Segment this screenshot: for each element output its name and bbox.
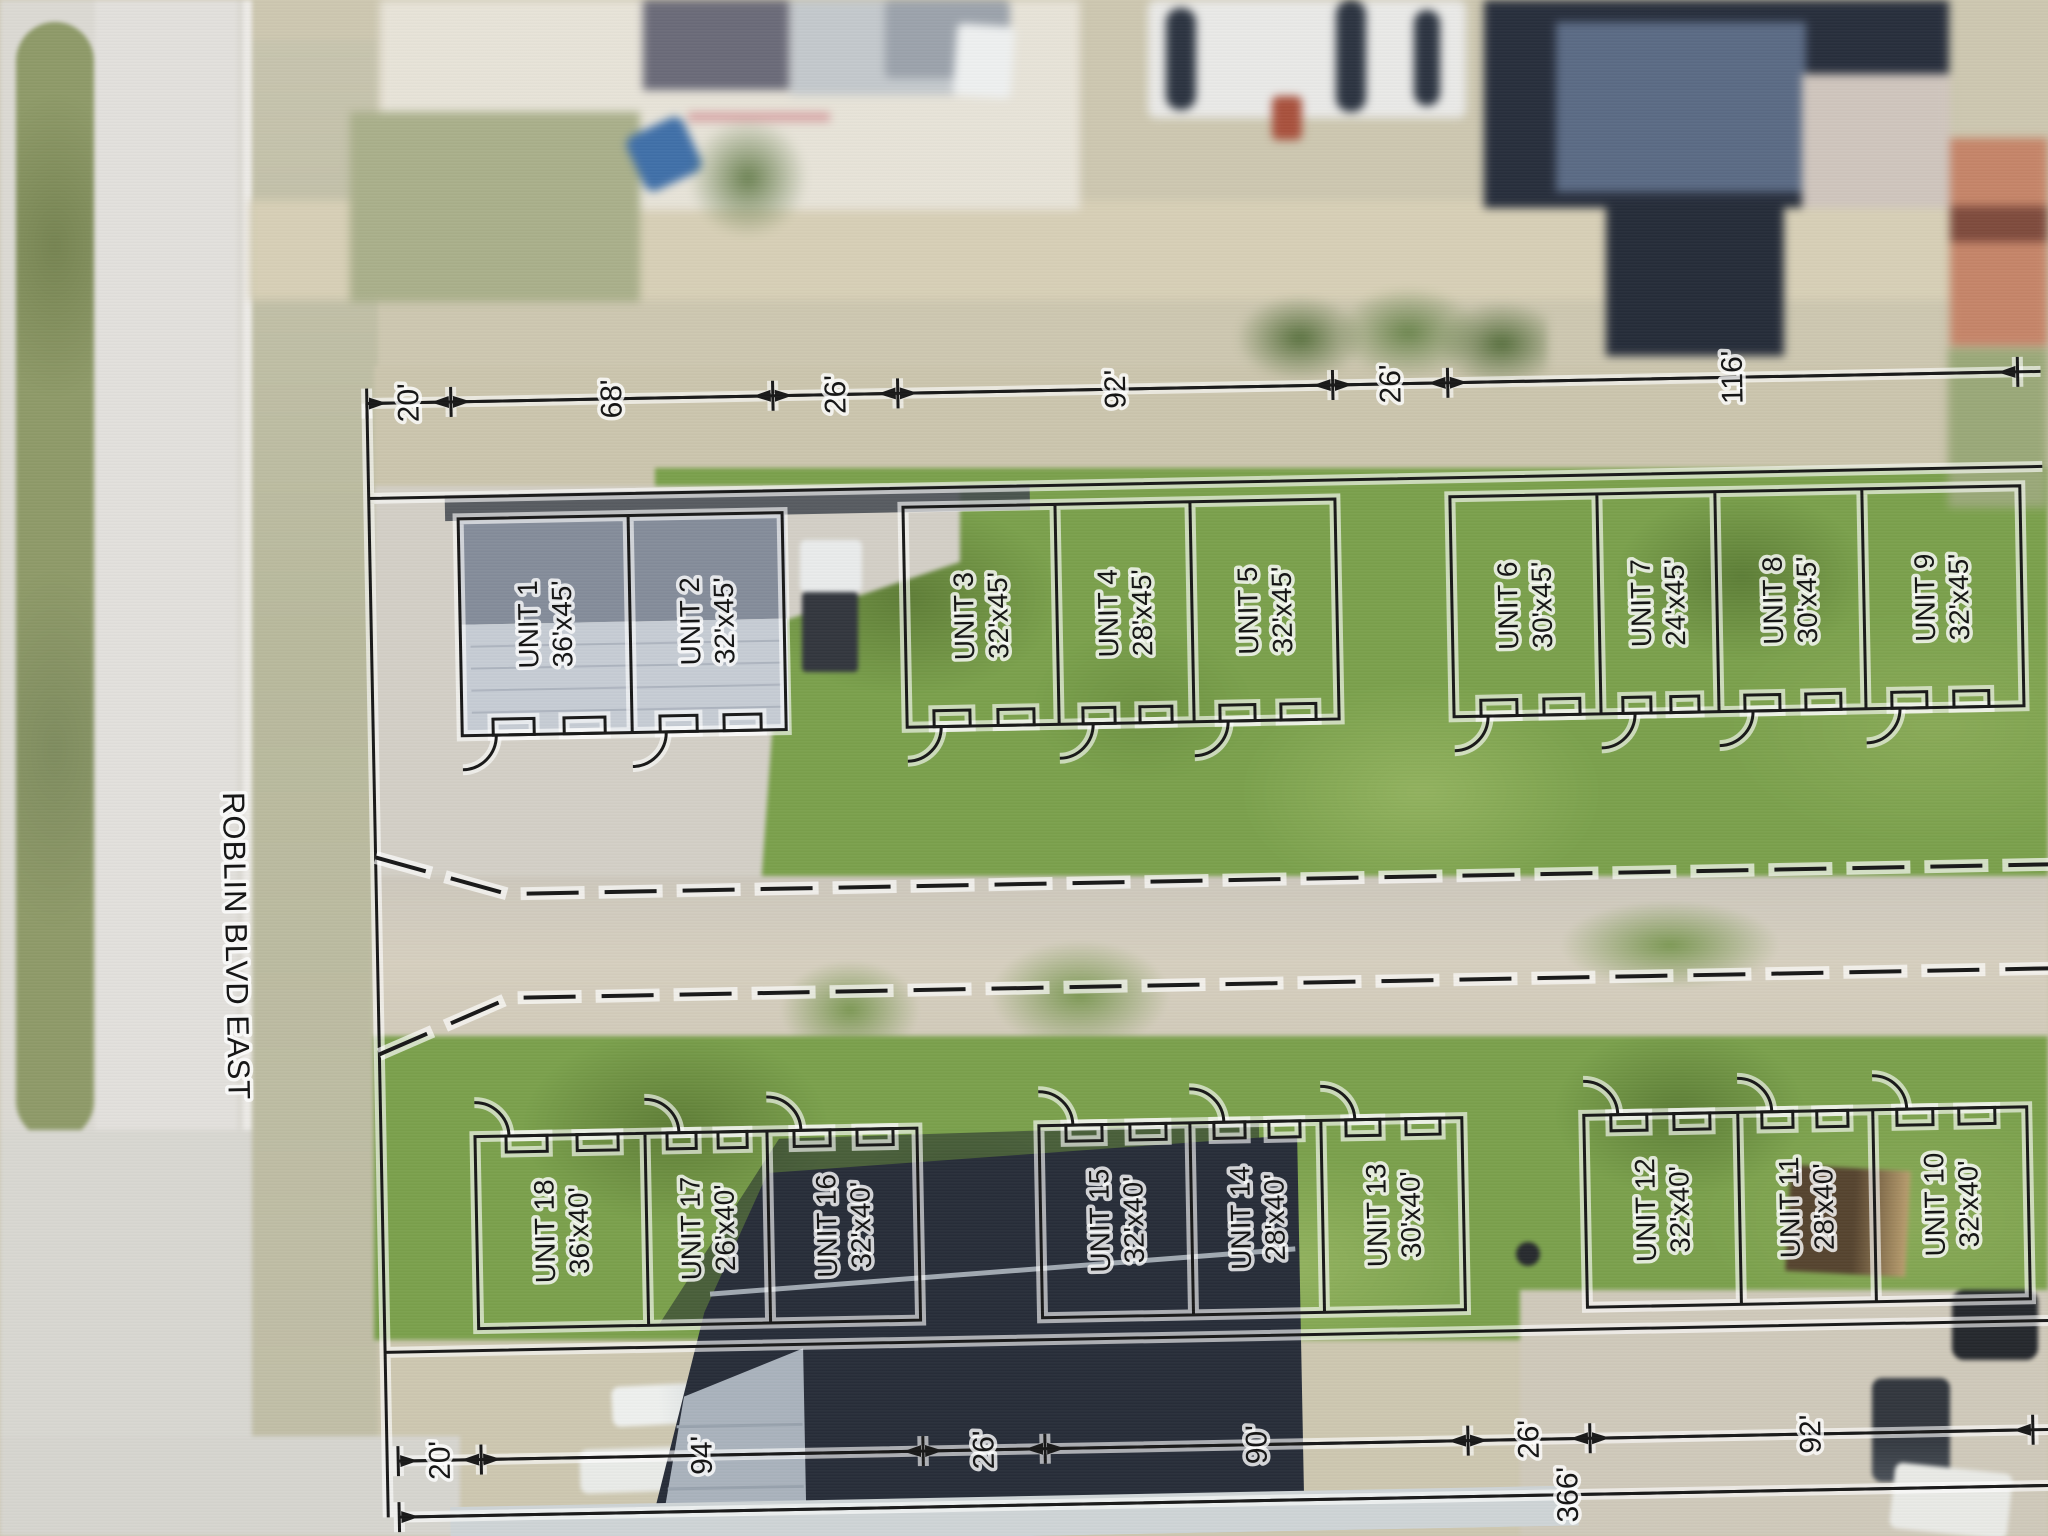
unit-4-name: UNIT 4 xyxy=(1092,569,1125,658)
unit-17-size: 26'x40' xyxy=(708,1184,741,1272)
unit-17-name: UNIT 17 xyxy=(674,1176,707,1280)
unit-6-name: UNIT 6 xyxy=(1492,561,1525,650)
unit-9-size: 32'x45' xyxy=(1943,553,1976,641)
bottom-dim-label: 90' xyxy=(1240,1425,1274,1465)
top-dim-label: 116' xyxy=(1716,350,1750,404)
bottom-dim-label: 92' xyxy=(1794,1414,1828,1454)
overall-dim-label: 366' xyxy=(1551,1466,1585,1522)
unit-12-size: 32'x40' xyxy=(1663,1166,1696,1254)
top-dim-label: 68' xyxy=(595,379,629,419)
unit-11-size: 28'x40' xyxy=(1807,1163,1840,1251)
unit-8-name: UNIT 8 xyxy=(1757,556,1790,645)
bottom-dim-label: 94' xyxy=(685,1435,719,1475)
unit-18-size: 36'x40' xyxy=(562,1187,595,1275)
unit-10-size: 32'x40' xyxy=(1952,1160,1985,1248)
unit-4-size: 28'x45' xyxy=(1126,569,1159,657)
street-name-label: ROBLIN BLVD EAST xyxy=(216,792,257,1101)
unit-3-size: 32'x45' xyxy=(982,572,1015,660)
site-plan-overlay: 20' 68' 26' 92' 26' 116' 20' 94' 26' 90'… xyxy=(0,0,2048,1536)
unit-13-size: 30'x40' xyxy=(1394,1171,1427,1259)
top-dim-label: 26' xyxy=(1374,364,1408,404)
lane-dash-lower-casing xyxy=(378,968,2048,1054)
unit-9-name: UNIT 9 xyxy=(1909,553,1942,642)
unit-5-size: 32'x45' xyxy=(1266,566,1299,654)
unit-1-size: 36'x45' xyxy=(546,580,579,668)
top-dim-label: 26' xyxy=(819,375,853,415)
unit-2-size: 32'x45' xyxy=(708,577,741,665)
unit-16-size: 32'x40' xyxy=(844,1181,877,1269)
unit-1-name: UNIT 1 xyxy=(512,580,545,669)
unit-13-name: UNIT 13 xyxy=(1360,1163,1393,1267)
unit-15-size: 32'x40' xyxy=(1117,1176,1150,1264)
lane-dash-upper-casing xyxy=(376,825,2048,896)
unit-8-size: 30'x45' xyxy=(1791,556,1824,644)
unit-11-name: UNIT 11 xyxy=(1773,1156,1806,1258)
unit-14-name: UNIT 14 xyxy=(1224,1166,1257,1270)
unit-15-name: UNIT 15 xyxy=(1083,1168,1116,1272)
unit-3-name: UNIT 3 xyxy=(948,572,981,661)
lane-dash-lower xyxy=(378,968,2048,1054)
unit-5-name: UNIT 5 xyxy=(1232,566,1265,655)
unit-18-name: UNIT 18 xyxy=(528,1179,561,1283)
unit-14-size: 28'x40' xyxy=(1258,1173,1291,1261)
unit-7-name: UNIT 7 xyxy=(1625,559,1658,648)
bottom-dim-label: 20' xyxy=(423,1440,457,1480)
top-dim-label: 20' xyxy=(392,383,426,423)
unit-2-name: UNIT 2 xyxy=(674,577,707,666)
unit-12-name: UNIT 12 xyxy=(1629,1158,1662,1262)
unit-16-name: UNIT 16 xyxy=(810,1174,843,1278)
top-dim-label: 92' xyxy=(1099,369,1133,409)
unit-10-name: UNIT 10 xyxy=(1918,1152,1951,1256)
unit-6-size: 30'x45' xyxy=(1526,561,1559,649)
bottom-dim-label: 26' xyxy=(1512,1420,1546,1460)
unit-7-size: 24'x45' xyxy=(1659,559,1692,647)
aerial-site-plan: 20' 68' 26' 92' 26' 116' 20' 94' 26' 90'… xyxy=(0,0,2048,1536)
bottom-dim-label: 26' xyxy=(967,1430,1001,1470)
